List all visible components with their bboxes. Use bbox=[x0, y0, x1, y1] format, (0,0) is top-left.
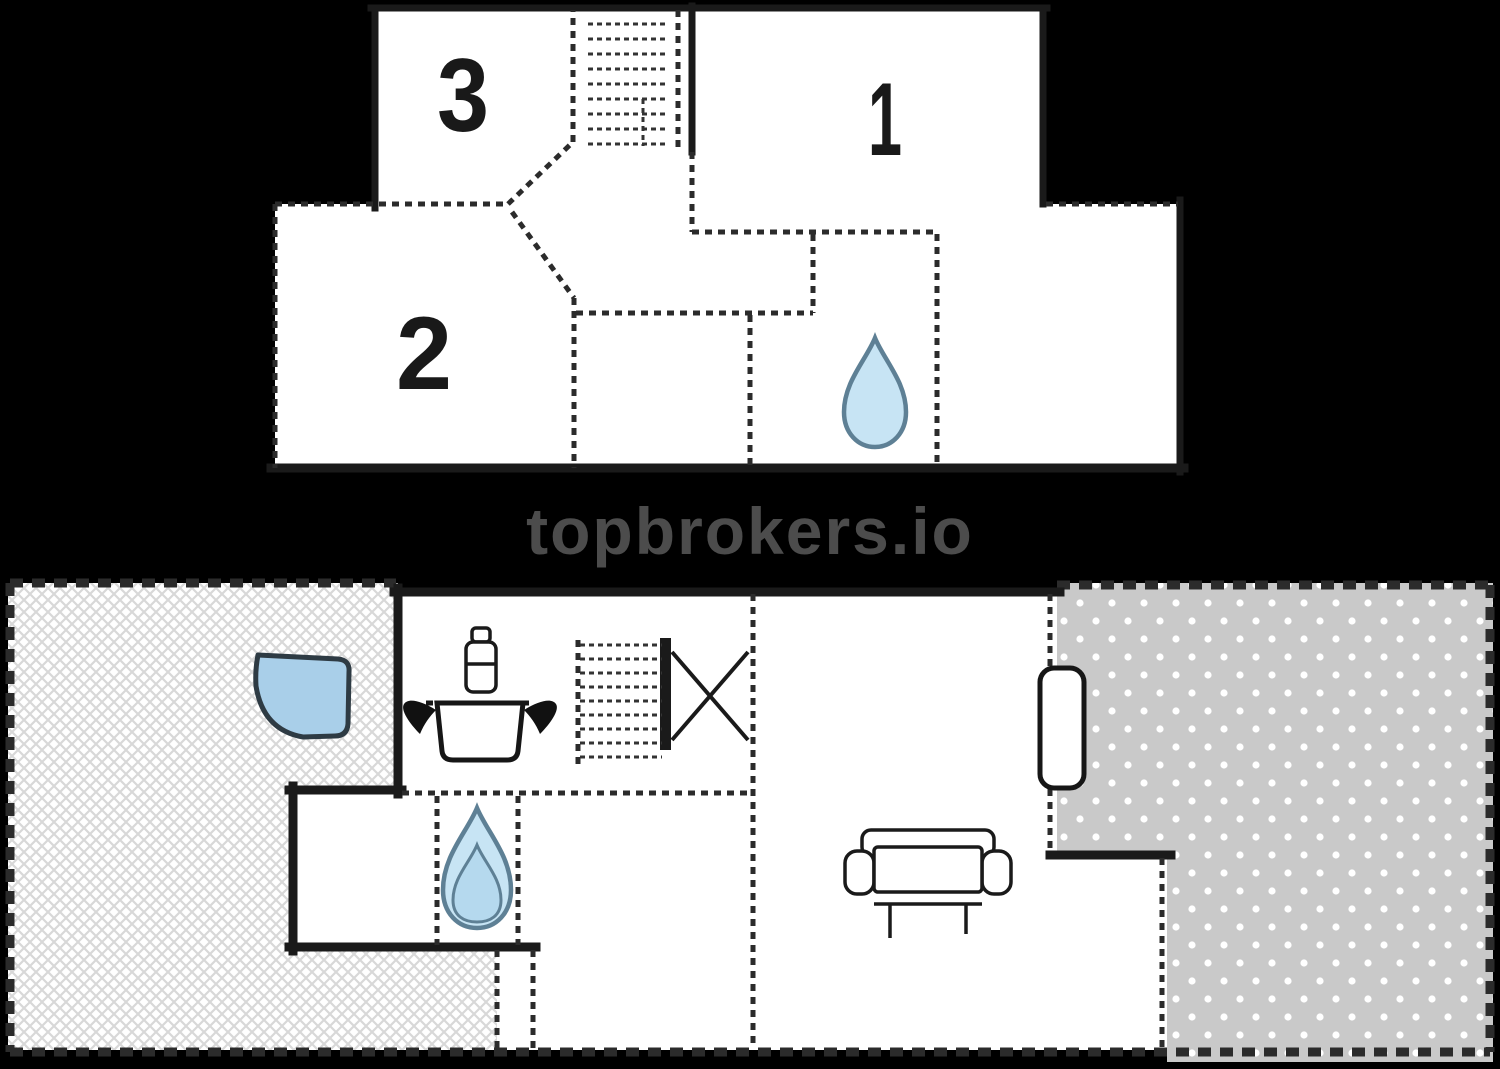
door-leaf-icon bbox=[1040, 668, 1084, 788]
floor-plan-svg: 1 2 3 topbrokers.io bbox=[0, 0, 1500, 1069]
room-label-1: 1 bbox=[868, 62, 902, 178]
room-label-3: 3 bbox=[437, 38, 489, 154]
room-label-2: 2 bbox=[396, 296, 452, 412]
floor-plan-image: 1 2 3 topbrokers.io bbox=[0, 0, 1500, 1069]
ground-floor-plan bbox=[8, 583, 1493, 1062]
faucet-icon bbox=[466, 628, 496, 692]
watermark-text: topbrokers.io bbox=[526, 494, 974, 568]
